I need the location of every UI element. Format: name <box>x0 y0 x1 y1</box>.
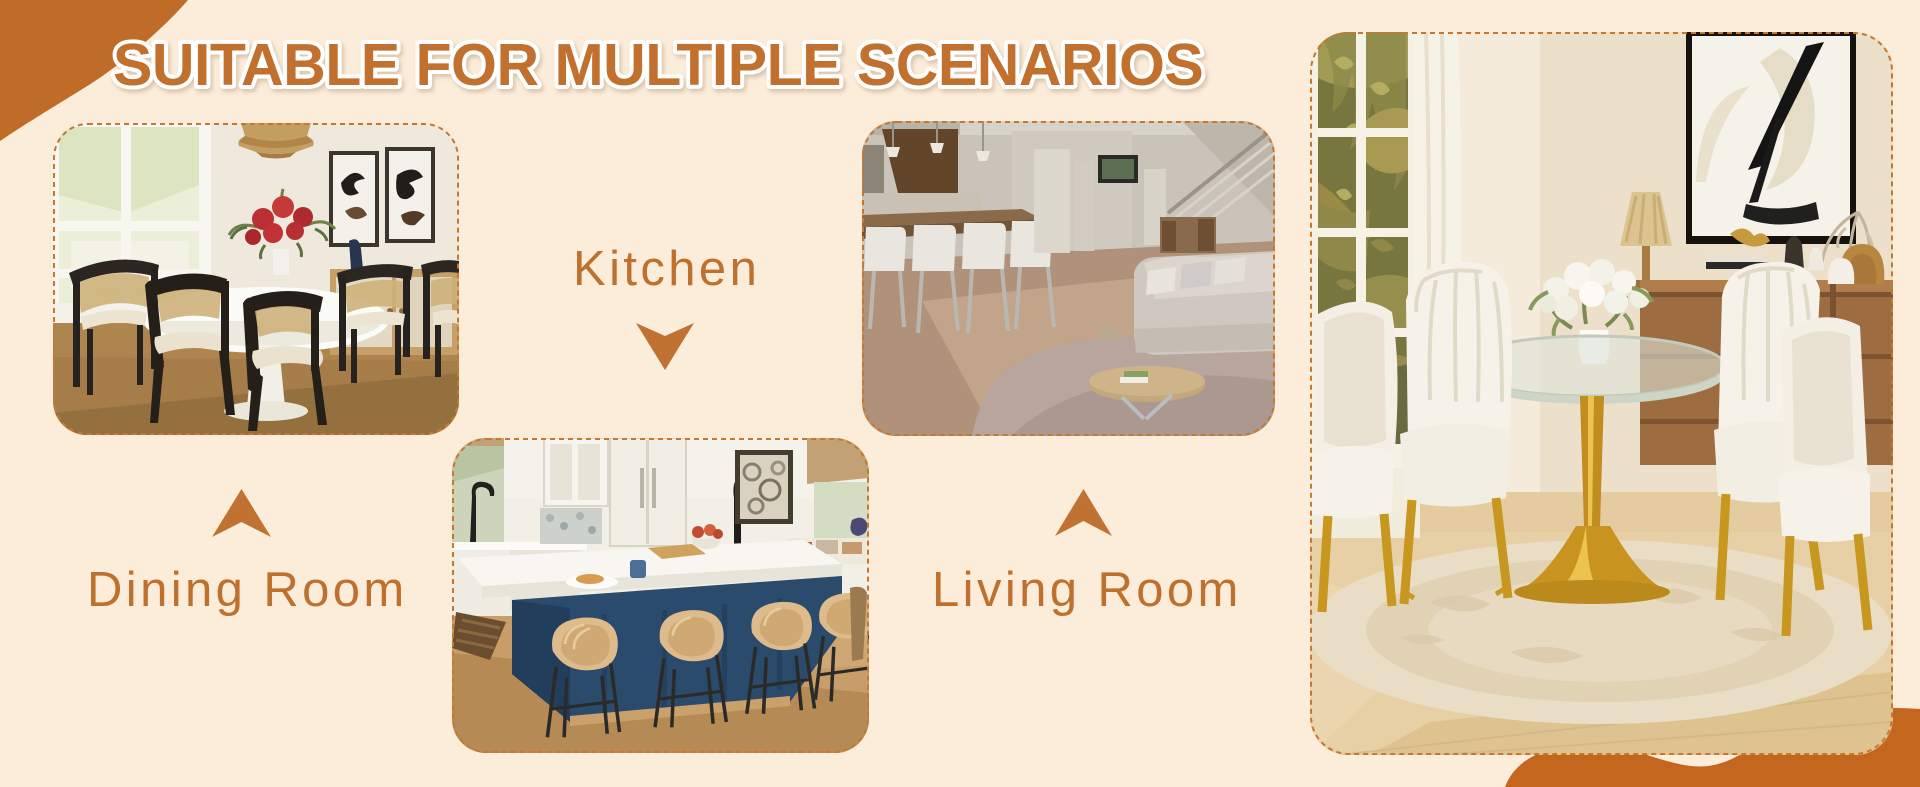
svg-text:SUITABLE FOR MULTIPLE SCENARIO: SUITABLE FOR MULTIPLE SCENARIOS <box>113 32 1203 98</box>
